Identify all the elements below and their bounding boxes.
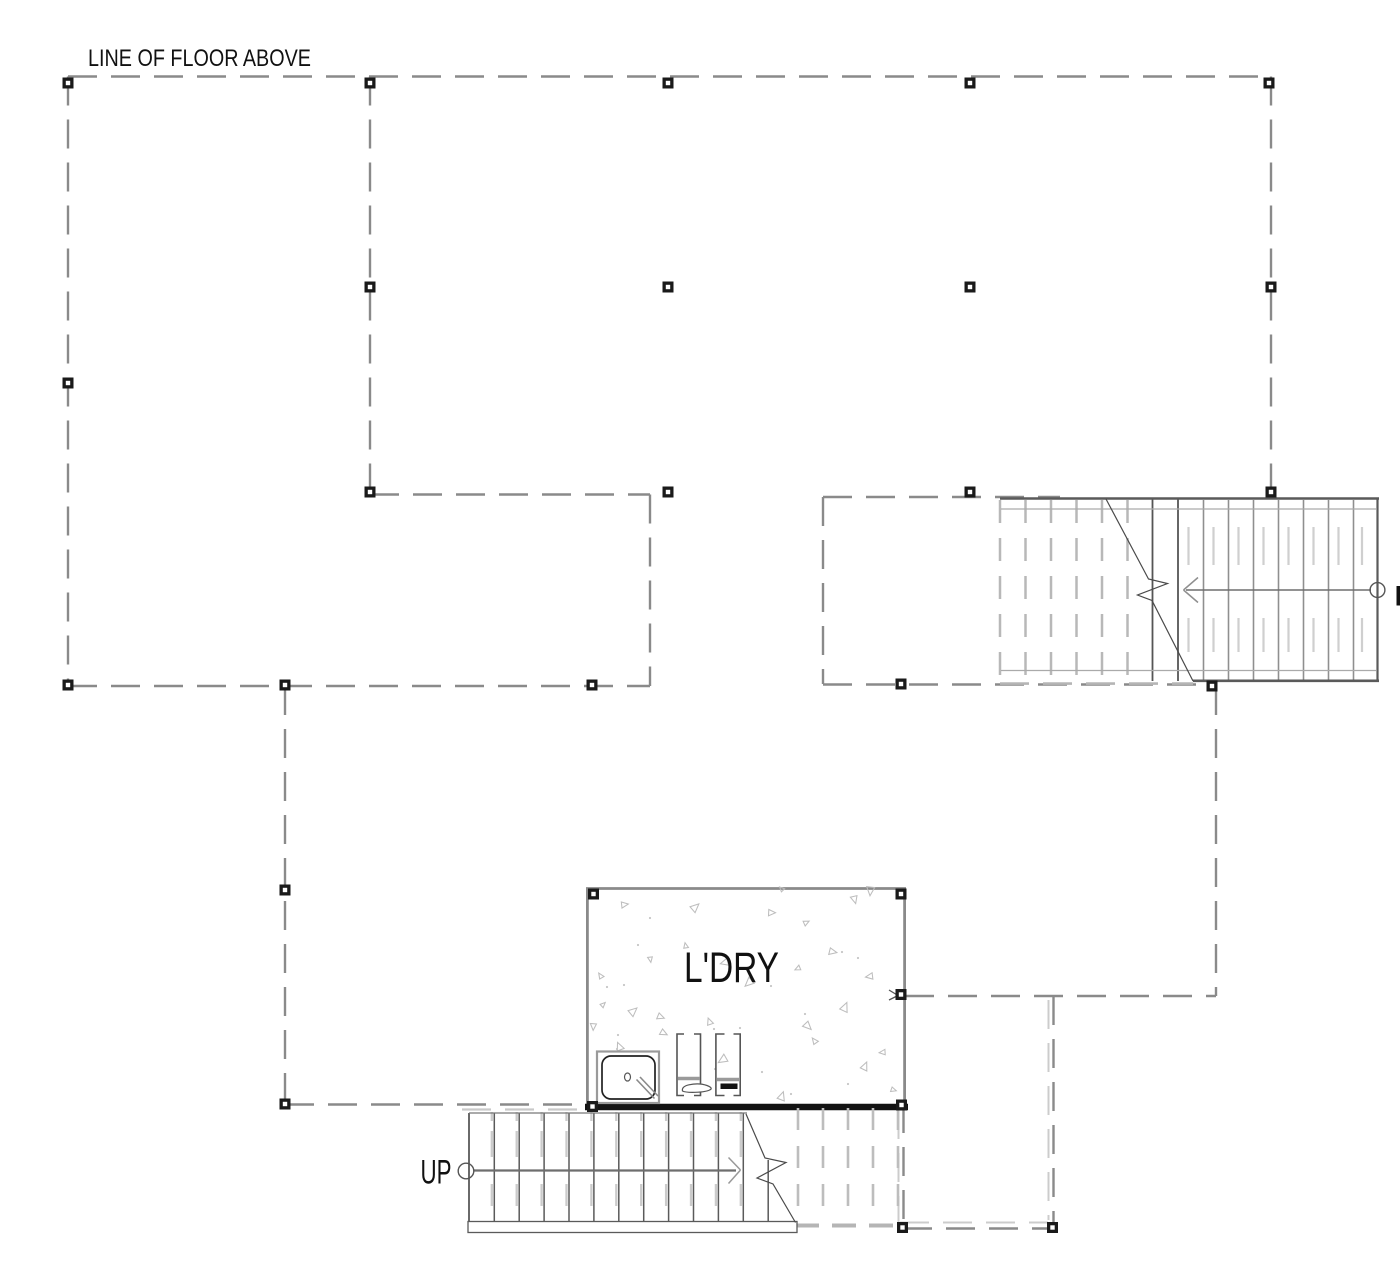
svg-text:LINE OF FLOOR ABOVE: LINE OF FLOOR ABOVE — [88, 45, 311, 72]
svg-text:L'DRY: L'DRY — [684, 944, 779, 992]
svg-text:UP: UP — [421, 1154, 452, 1192]
